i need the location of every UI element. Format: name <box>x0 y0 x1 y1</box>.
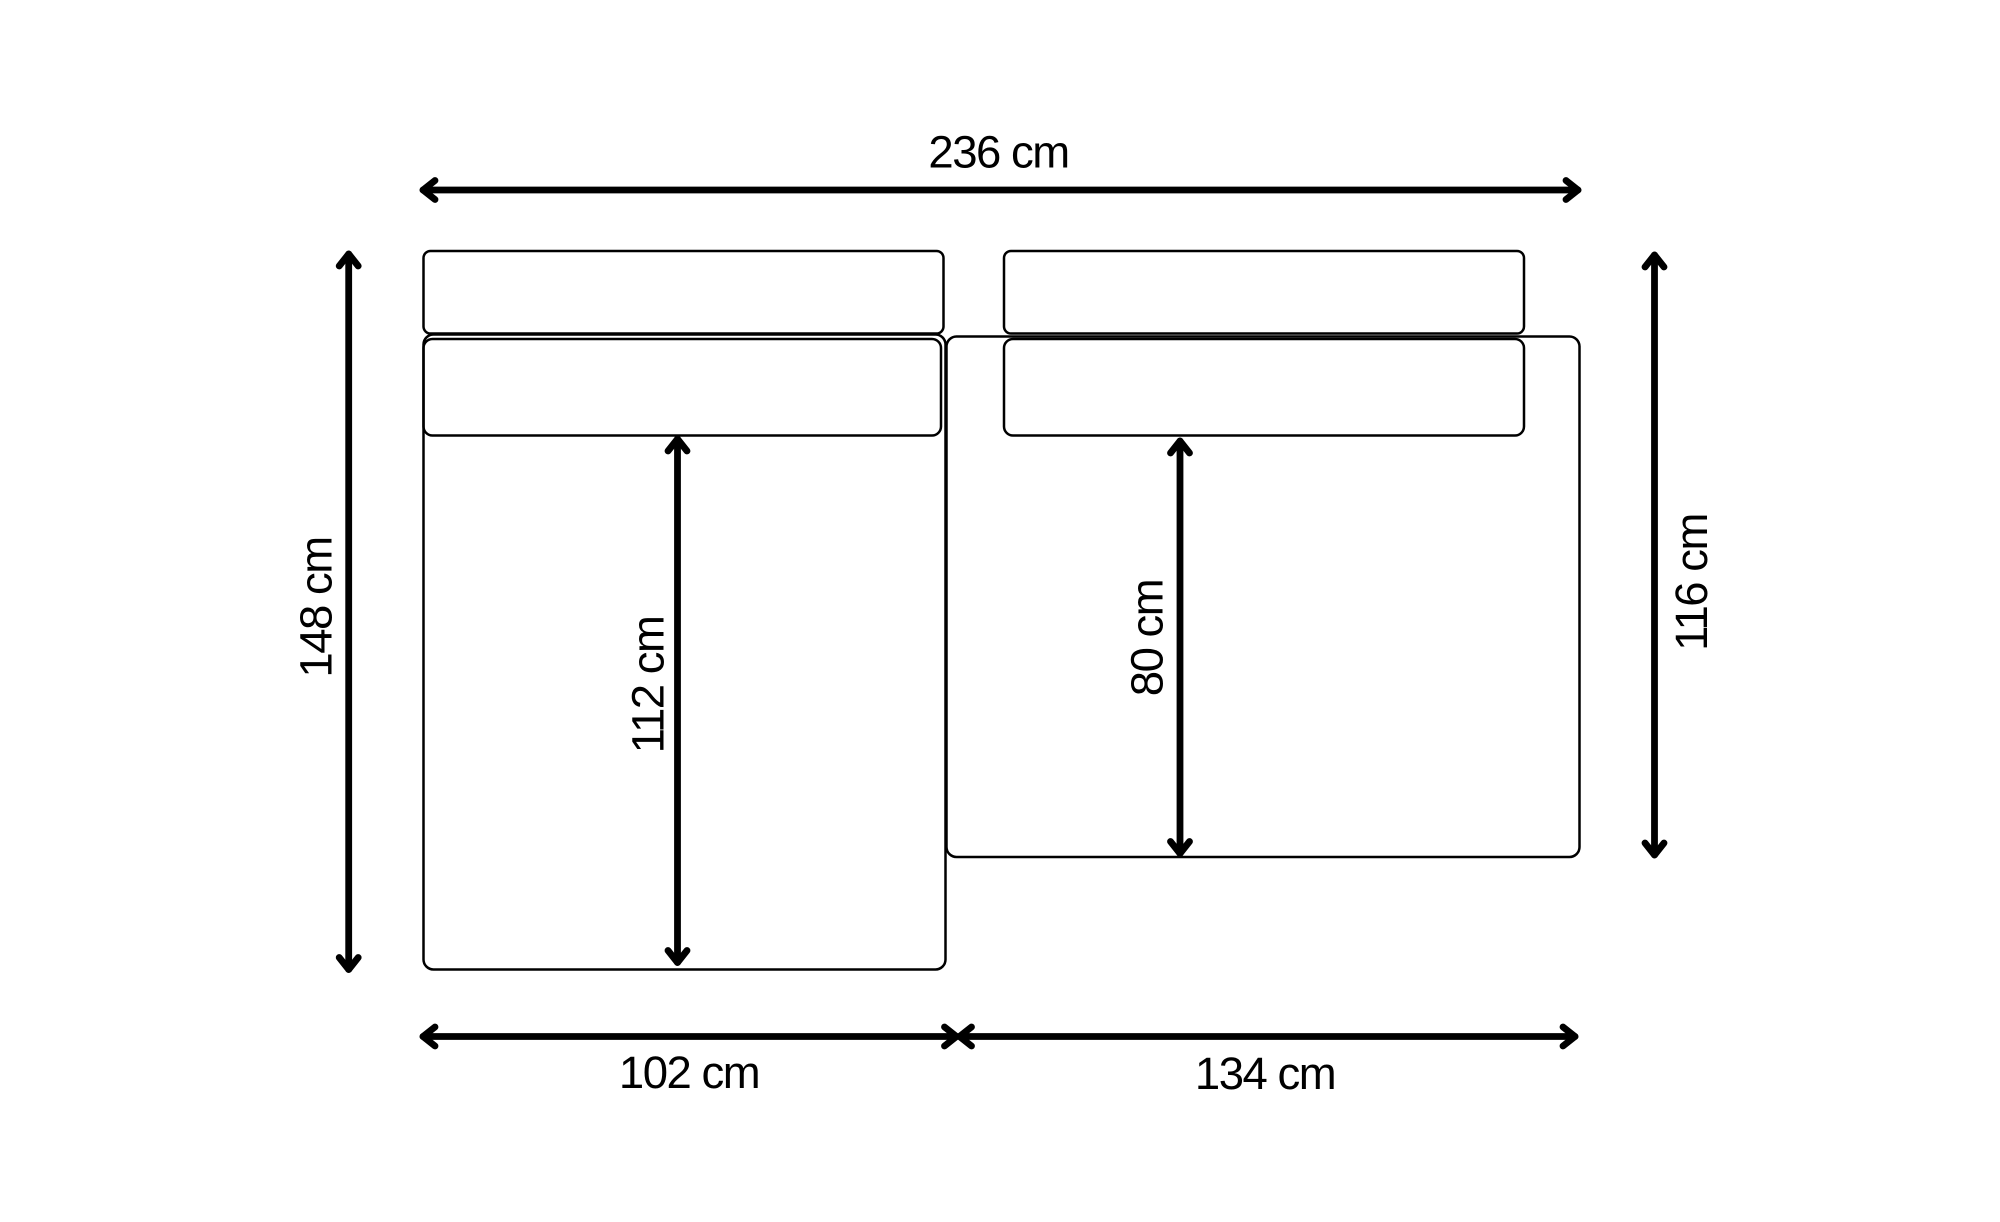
svg-text:148 cm: 148 cm <box>291 537 342 677</box>
svg-text:116 cm: 116 cm <box>1666 514 1717 651</box>
svg-text:134 cm: 134 cm <box>1195 1048 1335 1099</box>
svg-text:102 cm: 102 cm <box>619 1047 759 1098</box>
svg-text:236 cm: 236 cm <box>928 127 1068 178</box>
svg-text:112 cm: 112 cm <box>623 617 674 754</box>
svg-text:80 cm: 80 cm <box>1122 580 1173 696</box>
